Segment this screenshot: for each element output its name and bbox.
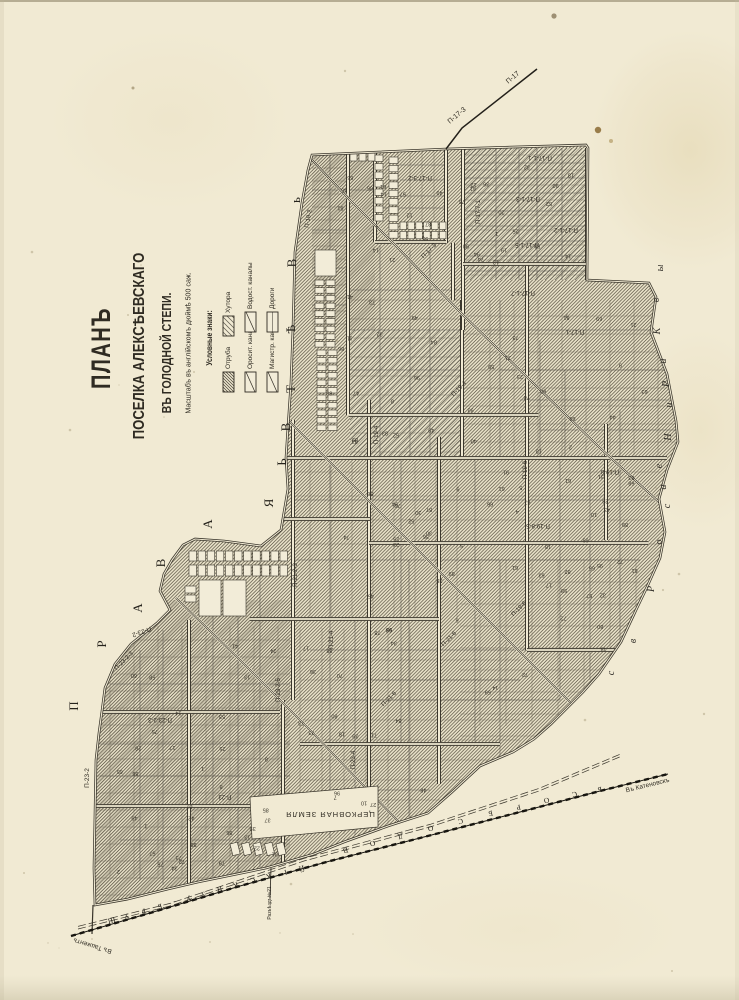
svg-text:52: 52 [408,518,414,524]
svg-text:82: 82 [564,568,570,574]
svg-text:95: 95 [386,626,392,632]
svg-text:17: 17 [169,744,175,750]
svg-text:72: 72 [522,671,528,677]
svg-text:49: 49 [436,189,442,195]
svg-text:В: В [153,558,168,567]
svg-text:70: 70 [337,672,343,678]
svg-text:61: 61 [512,564,518,570]
svg-text:90: 90 [463,242,469,248]
svg-text:17: 17 [303,645,309,651]
svg-text:37: 37 [264,816,270,822]
svg-text:П-17-3-2: П-17-3-2 [408,174,432,180]
svg-text:П-17-1-1: П-17-1-1 [528,154,552,160]
svg-text:34: 34 [171,864,177,870]
svg-text:10: 10 [361,800,367,806]
svg-text:57: 57 [149,850,155,856]
svg-text:28: 28 [602,498,608,504]
svg-text:81: 81 [337,204,343,210]
svg-text:а: а [658,485,669,490]
svg-text:36: 36 [483,180,489,186]
svg-text:49: 49 [428,427,434,433]
svg-text:58: 58 [149,674,155,680]
svg-text:43: 43 [604,506,610,512]
svg-text:П-21-2-3: П-21-2-3 [293,563,299,587]
svg-text:Н: Н [663,433,674,442]
svg-text:78: 78 [374,629,380,635]
svg-text:73: 73 [512,334,518,340]
svg-text:86: 86 [367,490,373,496]
svg-text:25: 25 [393,535,399,541]
svg-text:89: 89 [352,436,358,442]
svg-text:П-23-2-5: П-23-2-5 [276,678,282,702]
svg-text:93: 93 [468,406,474,412]
svg-text:69: 69 [596,315,602,321]
svg-text:84: 84 [431,338,437,344]
svg-text:68: 68 [569,415,575,421]
svg-text:Р: Р [94,640,109,647]
svg-text:2: 2 [569,444,572,450]
svg-text:87: 87 [426,506,432,512]
svg-text:18: 18 [339,730,345,736]
svg-text:86: 86 [132,770,138,776]
svg-text:П-17-1: П-17-1 [565,328,584,334]
svg-text:23: 23 [517,373,523,379]
svg-text:18: 18 [536,448,542,454]
svg-text:48: 48 [420,787,426,793]
svg-text:14: 14 [373,247,379,253]
svg-text:Р: Р [661,381,672,388]
svg-text:П-19-4: П-19-4 [374,425,380,444]
svg-text:57: 57 [400,191,406,197]
svg-text:Я: Я [261,498,276,507]
svg-text:П-23-2-3: П-23-2-3 [148,716,172,722]
svg-text:73: 73 [369,299,375,305]
svg-text:65: 65 [117,768,123,774]
svg-text:85: 85 [263,806,269,812]
svg-text:е: е [654,463,665,468]
svg-text:61: 61 [632,567,638,573]
svg-text:9: 9 [456,485,459,491]
svg-text:73: 73 [176,854,182,860]
svg-text:73: 73 [308,729,314,735]
svg-text:Дороги: Дороги [269,287,276,309]
svg-text:74: 74 [343,533,349,539]
svg-text:4: 4 [516,508,519,514]
svg-text:76: 76 [459,198,465,204]
svg-text:31: 31 [598,473,604,479]
svg-text:67: 67 [524,499,530,505]
svg-text:41: 41 [347,293,353,299]
svg-text:63: 63 [539,571,545,577]
svg-text:39: 39 [352,733,358,739]
svg-text:63: 63 [641,388,647,394]
svg-text:40: 40 [471,437,477,443]
svg-text:63: 63 [628,474,634,480]
svg-text:72: 72 [617,558,623,564]
svg-text:44: 44 [610,413,616,419]
svg-text:ПОСЕЛКА АЛЕКСѢЕВСКАГО: ПОСЕЛКА АЛЕКСѢЕВСКАГО [131,253,148,440]
svg-text:П-17-7-1: П-17-7-1 [476,200,482,224]
svg-text:20: 20 [498,209,504,215]
svg-text:В: В [278,422,293,431]
svg-text:Условные знаки:: Условные знаки: [204,310,214,365]
svg-text:83: 83 [382,430,388,436]
svg-text:57: 57 [586,592,592,598]
svg-text:68: 68 [628,480,634,486]
svg-text:18: 18 [568,171,574,177]
svg-text:ы: ы [655,264,666,271]
svg-text:60: 60 [540,387,546,393]
svg-text:12: 12 [493,258,499,264]
svg-text:ПЛАНЪ: ПЛАНЪ [86,307,117,389]
svg-text:95: 95 [597,562,603,568]
svg-text:32: 32 [377,330,383,336]
svg-text:52: 52 [546,200,552,206]
svg-text:Р: Р [646,586,657,593]
svg-text:79: 79 [219,860,225,866]
svg-text:о: о [654,540,665,545]
svg-text:89: 89 [449,570,455,576]
svg-text:ь: ь [288,197,303,203]
svg-text:в: в [628,638,639,643]
svg-text:П: П [66,701,81,710]
svg-text:21: 21 [505,354,511,360]
svg-text:24: 24 [270,647,276,653]
svg-text:в: в [651,297,662,302]
svg-text:61: 61 [470,185,476,191]
svg-text:36: 36 [423,533,429,539]
svg-text:8: 8 [220,783,223,789]
svg-text:П-19-8-5: П-19-8-5 [526,522,550,528]
svg-text:45: 45 [341,187,347,193]
svg-text:30: 30 [415,509,421,515]
svg-text:П-21-4: П-21-4 [329,630,335,649]
svg-text:32: 32 [600,592,606,598]
svg-text:18: 18 [545,543,551,549]
svg-text:49: 49 [131,814,137,820]
svg-text:5: 5 [519,484,522,490]
svg-text:59: 59 [485,689,491,695]
svg-text:21: 21 [631,321,637,327]
svg-text:69: 69 [326,390,332,396]
svg-text:42: 42 [188,815,194,821]
svg-text:12: 12 [407,211,413,217]
svg-text:10: 10 [591,511,597,517]
svg-text:87: 87 [425,221,431,227]
svg-text:78: 78 [524,394,530,400]
svg-text:Т: Т [283,385,298,393]
svg-text:88: 88 [326,647,332,653]
svg-text:В: В [284,258,299,267]
svg-text:72: 72 [560,615,566,621]
svg-text:59: 59 [534,243,540,249]
svg-text:9: 9 [619,361,622,367]
svg-text:47: 47 [353,390,359,396]
svg-text:П-17-1-7: П-17-1-7 [511,289,535,295]
svg-text:7: 7 [334,794,337,800]
svg-text:61: 61 [565,477,571,483]
svg-text:Хутора: Хутора [225,291,232,313]
svg-text:66: 66 [347,174,353,180]
svg-text:89: 89 [622,521,628,527]
svg-text:48: 48 [601,645,607,651]
svg-text:5: 5 [460,542,463,548]
svg-text:32: 32 [524,164,530,170]
svg-text:66: 66 [487,501,493,507]
svg-text:П-23-2: П-23-2 [84,768,91,788]
svg-text:86: 86 [226,829,232,835]
svg-text:14: 14 [381,191,387,197]
svg-text:А: А [200,519,215,529]
svg-text:Отруба: Отруба [224,347,232,369]
svg-text:90: 90 [553,182,559,188]
svg-text:95: 95 [422,235,428,241]
svg-text:88: 88 [191,841,197,847]
svg-text:А: А [130,603,145,613]
svg-text:69: 69 [583,536,589,542]
svg-text:13: 13 [244,833,250,839]
svg-text:с: с [662,503,673,508]
svg-text:75: 75 [152,728,158,734]
svg-text:13: 13 [244,674,250,680]
svg-text:11: 11 [347,334,353,340]
svg-text:36: 36 [310,668,316,674]
svg-text:59: 59 [488,363,494,369]
svg-text:80: 80 [597,623,603,629]
svg-text:34: 34 [391,640,397,646]
svg-text:96: 96 [414,374,420,380]
svg-text:Ѣ: Ѣ [283,324,298,333]
svg-text:8: 8 [391,398,394,404]
svg-text:94: 94 [392,501,398,507]
svg-text:П-17-1-2: П-17-1-2 [554,226,578,232]
svg-text:61: 61 [380,183,386,189]
svg-text:2: 2 [117,868,120,874]
svg-text:53: 53 [219,713,225,719]
svg-text:28: 28 [135,745,141,751]
svg-text:31: 31 [272,850,278,856]
svg-text:49: 49 [412,314,418,320]
svg-text:45: 45 [368,592,374,598]
svg-text:14: 14 [175,709,181,715]
svg-text:14: 14 [492,684,498,690]
svg-text:65: 65 [589,564,595,570]
svg-text:П-19-6: П-19-6 [523,460,529,479]
svg-text:39: 39 [250,825,256,831]
svg-text:Водост. каналы: Водост. каналы [247,262,254,309]
svg-text:и: и [664,403,675,408]
svg-text:Ь: Ь [274,458,289,466]
svg-text:27: 27 [370,801,376,807]
svg-text:87: 87 [186,803,192,809]
svg-text:91: 91 [503,469,509,475]
svg-text:17: 17 [546,582,552,588]
svg-text:4: 4 [375,223,378,229]
svg-text:1: 1 [495,230,498,236]
svg-text:86: 86 [338,345,344,351]
svg-text:61: 61 [499,485,505,491]
svg-text:85: 85 [367,184,373,190]
svg-text:60: 60 [131,672,137,678]
svg-text:П-23-4: П-23-4 [351,750,357,769]
svg-text:81: 81 [563,314,569,320]
svg-text:73: 73 [298,720,304,726]
svg-text:8: 8 [265,755,268,761]
svg-text:1: 1 [201,765,204,771]
svg-text:Магистр. кан.: Магистр. кан. [269,328,276,369]
svg-text:П-17-1-3: П-17-1-3 [516,195,540,201]
svg-text:25: 25 [513,227,519,233]
svg-text:58: 58 [561,587,567,593]
svg-text:6: 6 [456,616,459,622]
svg-text:П-23: П-23 [218,793,232,799]
svg-text:28: 28 [436,577,442,583]
svg-text:а: а [658,359,669,364]
svg-text:14: 14 [565,253,571,259]
svg-text:Разъѣздъ№21: Разъѣздъ№21 [267,886,273,920]
svg-text:1: 1 [144,823,147,829]
svg-text:80: 80 [331,713,337,719]
svg-text:ВЪ ГОЛОДНОЙ СТЕПИ.: ВЪ ГОЛОДНОЙ СТЕПИ. [159,293,174,414]
svg-text:41: 41 [232,643,238,649]
svg-text:с: с [606,670,617,675]
svg-text:22: 22 [254,845,260,851]
svg-text:74: 74 [478,256,484,262]
svg-text:25: 25 [219,745,225,751]
svg-text:ЦЕРКОВНАЯ ЗЕМЛЯ: ЦЕРКОВНАЯ ЗЕМЛЯ [285,810,375,819]
svg-text:21: 21 [389,256,395,262]
svg-text:Масштабъ въ англійскомъ дюймѣ: Масштабъ въ англійскомъ дюймѣ 500 саж. [183,272,192,413]
svg-text:71: 71 [371,732,377,738]
svg-text:19: 19 [501,247,507,253]
svg-text:75: 75 [157,860,163,866]
svg-text:84: 84 [395,717,401,723]
svg-text:52: 52 [393,432,399,438]
